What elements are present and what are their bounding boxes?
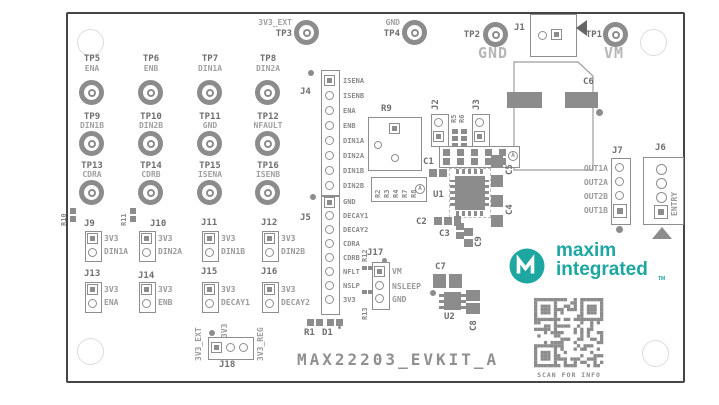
r7-ref-label: R7 <box>401 179 409 198</box>
j10-pin2-label: DIN2A <box>158 247 182 256</box>
j17-pin-label: VM <box>392 267 402 276</box>
j5-pin-label: GND <box>343 198 356 206</box>
r9-ref-label: R9 <box>381 104 392 114</box>
tp7-signal-label: DIN1A <box>182 64 238 73</box>
j17-pin-label: GND <box>392 295 406 304</box>
j9-ref-label: J9 <box>84 219 95 229</box>
j4-pin-label: DIN1B <box>343 167 364 175</box>
u1-pins <box>456 169 484 174</box>
c9-pad <box>464 228 473 236</box>
c1-pad <box>429 169 437 177</box>
c6-ref-label: C6 <box>583 77 594 87</box>
j17-pin1 <box>374 266 385 277</box>
u2-pin1-dot <box>430 290 436 296</box>
j10-pin2 <box>142 248 151 257</box>
r9-pad <box>374 141 382 149</box>
pcb-assembly-drawing: 3V3_EXT TP3 GND TP4 TP2 GND TP1 VM J1 C6… <box>0 0 719 405</box>
tp13-testpoint <box>79 180 104 205</box>
j18-pin1 <box>211 342 222 353</box>
j12-pin1-label: 3V3 <box>281 234 295 243</box>
tp5-testpoint <box>79 80 104 105</box>
c6-outline <box>508 58 600 174</box>
tp5-ref-label: TP5 <box>64 54 120 64</box>
j4-pin-label: ISENA <box>343 77 364 85</box>
j4-pin <box>325 91 334 100</box>
j4-pin <box>325 106 334 115</box>
r6-pad <box>461 136 467 141</box>
j7-pin <box>615 163 624 172</box>
tp11-testpoint <box>197 131 222 156</box>
r12-ref-label: R12 <box>361 240 369 262</box>
c8-pad <box>466 303 480 314</box>
j18-pin <box>226 343 235 352</box>
j6-ref-label: J6 <box>655 143 666 153</box>
j4-pin <box>325 121 334 130</box>
j9-pin1-label: 3V3 <box>104 234 118 243</box>
tp10-signal-label: DIN2B <box>123 121 179 130</box>
tp6-signal-label: ENB <box>123 64 179 73</box>
c6-polarity-dot <box>596 109 603 116</box>
j9-pin2 <box>88 248 97 257</box>
r2-ref-label: R2 <box>374 179 382 198</box>
c3-pad <box>456 223 464 230</box>
j4-pin <box>325 136 334 145</box>
u2-ic-body <box>444 292 461 310</box>
j7-pin1 <box>613 204 627 218</box>
j10-pin1-label: 3V3 <box>158 234 172 243</box>
c8-ref-label: C8 <box>469 315 479 331</box>
r11-ref-label: R11 <box>120 203 128 226</box>
j11-pin1-label: 3V3 <box>221 234 235 243</box>
j17-pin <box>375 281 384 290</box>
c7-pad <box>449 274 462 288</box>
c4-pad <box>491 195 503 207</box>
j17-ref-label: J17 <box>367 248 383 258</box>
gnd-big-label: GND <box>478 44 508 62</box>
j5-pin1 <box>324 197 335 208</box>
j18-pin1-dot <box>209 330 215 336</box>
u1-ref-label: U1 <box>433 190 444 200</box>
c3-ref-label: C3 <box>439 229 450 239</box>
socket-pad <box>471 149 478 156</box>
qr-code <box>532 296 606 370</box>
j5-pin <box>325 281 334 290</box>
c9-ref-label: C9 <box>474 231 484 247</box>
r1-pad <box>316 319 323 326</box>
j17-pin <box>375 294 384 303</box>
c3-pad <box>456 232 464 239</box>
r6-ref-label: R6 <box>458 106 466 123</box>
c4-pad <box>491 215 503 227</box>
j5-pin-label: NFLT <box>343 268 360 276</box>
tp10-testpoint <box>138 131 163 156</box>
j10-ref-label: J10 <box>150 219 166 229</box>
j6-pin <box>656 178 667 189</box>
j16-pin1 <box>264 284 275 295</box>
j18-ref-label: J18 <box>219 360 235 370</box>
r1-ref-label: R1 <box>304 328 315 338</box>
maxim-wordmark-line1: maxim <box>556 241 616 260</box>
tp4-signal-label: GND <box>350 18 400 27</box>
j7-ref-label: J7 <box>612 146 623 156</box>
u2-ref-label: U2 <box>444 312 455 322</box>
j13-pin1 <box>87 284 98 295</box>
tp8-signal-label: DIN2A <box>240 64 296 73</box>
tp15-signal-label: ISENA <box>182 170 238 179</box>
j2-pin <box>434 118 443 127</box>
j5-pin <box>325 253 334 262</box>
r11-pad <box>130 208 136 214</box>
j4-header <box>321 70 340 196</box>
j7-pin-label: OUT1B <box>568 206 608 215</box>
tp6-testpoint <box>138 80 163 105</box>
j14-pin2-label: ENB <box>158 298 172 307</box>
d1-polarity-dot <box>338 326 341 329</box>
r10-pad <box>70 208 76 214</box>
tp3-ref-label: TP3 <box>238 29 292 39</box>
j7-pin <box>615 177 624 186</box>
tp12-signal-label: NFAULT <box>240 121 296 130</box>
socket-pad <box>443 149 450 156</box>
j7-pin-label: OUT2B <box>568 192 608 201</box>
r6-pad <box>461 129 467 134</box>
j3-ref-label: J3 <box>472 92 482 110</box>
j5-pin-label: DECAY1 <box>343 212 368 220</box>
j4-pin-label: ENA <box>343 107 356 115</box>
r5-pad <box>452 129 458 134</box>
j4-pin1-dot <box>308 70 314 76</box>
c6-pad <box>565 92 598 108</box>
j12-pin2-label: DIN2B <box>281 247 305 256</box>
j16-ref-label: J16 <box>261 267 277 277</box>
mounting-hole <box>640 29 667 56</box>
c7-pad <box>433 274 446 288</box>
j5-pin <box>325 211 334 220</box>
j6-pin1 <box>654 205 668 219</box>
tp5-signal-label: ENA <box>64 64 120 73</box>
j13-pin1-label: 3V3 <box>104 285 118 294</box>
tp12-testpoint <box>255 131 280 156</box>
maxim-wordmark-line2: integrated <box>556 260 648 279</box>
c4-ref-label: C4 <box>505 197 515 215</box>
j18-pin2-label: 3V3 <box>220 312 229 338</box>
socket-pad <box>457 158 464 165</box>
tp8-ref-label: TP8 <box>240 54 296 64</box>
r1-pad <box>307 319 314 326</box>
tp16-signal-label: ISENB <box>240 170 296 179</box>
c5-pad <box>491 155 503 167</box>
r10-pad <box>70 216 76 222</box>
r5-pad <box>452 136 458 141</box>
j11-pin1 <box>204 233 215 244</box>
tp16-testpoint <box>255 180 280 205</box>
j12-pin1 <box>264 233 275 244</box>
tp13-signal-label: CDRA <box>64 170 120 179</box>
tp15-testpoint <box>197 180 222 205</box>
j1-pin1 <box>551 29 562 40</box>
j15-pin1 <box>204 284 215 295</box>
mounting-hole <box>77 29 104 56</box>
trademark-symbol: TM <box>658 276 665 282</box>
j2-pin1 <box>433 131 444 142</box>
j14-pin1-label: 3V3 <box>158 285 172 294</box>
j5-pin <box>325 267 334 276</box>
tp8-testpoint <box>255 80 280 105</box>
j4-pin <box>325 181 334 190</box>
j5-pin <box>325 295 334 304</box>
j9-pin1 <box>87 233 98 244</box>
j12-pin2 <box>265 248 274 257</box>
j4-pin <box>325 151 334 160</box>
j4-pin-label: DIN2A <box>343 152 364 160</box>
d1-pad <box>336 319 343 326</box>
j10-pin1 <box>141 233 152 244</box>
socket-pad <box>457 149 464 156</box>
tp9-signal-label: DIN1B <box>64 121 120 130</box>
j16-pin2 <box>265 299 274 308</box>
c1-pad <box>439 169 447 177</box>
variant-a-mark: A <box>415 184 425 194</box>
r9-pad <box>391 154 399 162</box>
j13-ref-label: J13 <box>84 269 100 279</box>
tp4-testpoint <box>402 20 427 45</box>
j18-pin <box>239 343 248 352</box>
j4-pin-label: DIN1A <box>343 137 364 145</box>
j6-pin <box>656 192 667 203</box>
j7-pin-label: OUT2A <box>568 178 608 187</box>
socket-pad <box>443 158 450 165</box>
j14-ref-label: J14 <box>138 271 154 281</box>
j14-pin1 <box>141 284 152 295</box>
mounting-hole <box>77 338 104 365</box>
c5-pad <box>491 175 503 187</box>
j17-pin-label: NSLEEP <box>392 282 421 291</box>
j4-pin-label: DIN2B <box>343 182 364 190</box>
j4-pin1 <box>324 75 335 86</box>
j13-pin2-label: ENA <box>104 298 118 307</box>
tp3-signal-label: 3V3_EXT <box>238 18 292 27</box>
c2-pad <box>434 217 442 225</box>
r5-ref-label: R5 <box>450 106 458 123</box>
r10-ref-label: R10 <box>60 203 68 226</box>
j6-signal-label: ENTRY <box>670 166 679 216</box>
c6-pad <box>507 92 542 108</box>
maxim-logo-icon <box>509 248 545 284</box>
j15-pin1-label: 3V3 <box>221 285 235 294</box>
j4-ref-label: J4 <box>300 87 311 97</box>
c1-ref-label: C1 <box>423 157 434 167</box>
tp3-testpoint <box>294 20 319 45</box>
c8-pad <box>466 290 480 301</box>
j4-pin-label: ISENB <box>343 92 364 100</box>
j12-ref-label: J12 <box>261 218 277 228</box>
j9-pin2-label: DIN1A <box>104 247 128 256</box>
j5-pin-label: DECAY2 <box>343 226 368 234</box>
j7-pin <box>615 191 624 200</box>
tp7-testpoint <box>197 80 222 105</box>
tp14-testpoint <box>138 180 163 205</box>
tp4-ref-label: TP4 <box>350 29 400 39</box>
j13-pin2 <box>88 299 97 308</box>
tp9-testpoint <box>79 131 104 156</box>
c7-ref-label: C7 <box>435 262 446 272</box>
mounting-hole <box>642 340 669 367</box>
j5-pin1-dot <box>310 194 316 200</box>
vm-big-label: VM <box>604 44 624 62</box>
j18-pin1-label: 3V3_EXT <box>194 305 203 361</box>
j15-ref-label: J15 <box>201 267 217 277</box>
j6-polarity-arrow-icon <box>652 227 672 239</box>
r12-pad <box>362 266 367 270</box>
r9-pad <box>389 123 400 134</box>
d1-pad <box>327 319 334 326</box>
j11-ref-label: J11 <box>201 218 217 228</box>
j5-pin-label: CDRB <box>343 254 360 262</box>
r12-pad <box>368 266 373 270</box>
r4-ref-label: R4 <box>392 179 400 198</box>
tp7-ref-label: TP7 <box>182 54 238 64</box>
j11-pin2 <box>205 248 214 257</box>
j7-pin-label: OUT1A <box>568 164 608 173</box>
j5-pin-label: 3V3 <box>343 296 356 304</box>
qr-caption: SCAN FOR INFO <box>528 371 610 379</box>
tp11-signal-label: GND <box>182 121 238 130</box>
board-title: MAX22203_EVKIT_A <box>297 350 499 369</box>
j1-ref-label: J1 <box>514 23 525 33</box>
j5-pin <box>325 239 334 248</box>
j15-pin2 <box>205 299 214 308</box>
r13-pad <box>368 290 373 294</box>
j2-ref-label: J2 <box>431 92 441 110</box>
j15-pin2-label: DECAY1 <box>221 298 250 307</box>
j5-pin-label: CDRA <box>343 240 360 248</box>
j1-pin <box>538 31 547 40</box>
j3-pin1 <box>474 131 485 142</box>
tp14-signal-label: CDRB <box>123 170 179 179</box>
j5-pin-label: NSLP <box>343 282 360 290</box>
j16-pin1-label: 3V3 <box>281 285 295 294</box>
c9-pad <box>464 239 473 247</box>
c5-ref-label: C5 <box>505 157 515 175</box>
j3-pin <box>475 118 484 127</box>
j6-pin <box>656 164 667 175</box>
c2-ref-label: C2 <box>416 217 427 227</box>
r13-ref-label: R13 <box>361 296 369 320</box>
r3-ref-label: R3 <box>383 179 391 198</box>
j4-pin-label: ENB <box>343 122 356 130</box>
tp2-ref-label: TP2 <box>452 30 480 40</box>
r11-pad <box>130 216 136 222</box>
j1-polarity-arrow-icon <box>576 20 587 36</box>
j14-pin2 <box>142 299 151 308</box>
j11-pin2-label: DIN1B <box>221 247 245 256</box>
u1-ic-body <box>455 176 485 210</box>
d1-ref-label: D1 <box>322 328 333 338</box>
j4-pin <box>325 166 334 175</box>
j5-pin <box>325 225 334 234</box>
j16-pin2-label: DECAY2 <box>281 298 310 307</box>
c2-pad <box>444 217 452 225</box>
socket-pad <box>471 158 478 165</box>
j7-pin1-dot <box>616 226 623 233</box>
j5-ref-label: J5 <box>300 213 311 223</box>
r13-pad <box>362 290 367 294</box>
tp6-ref-label: TP6 <box>123 54 179 64</box>
